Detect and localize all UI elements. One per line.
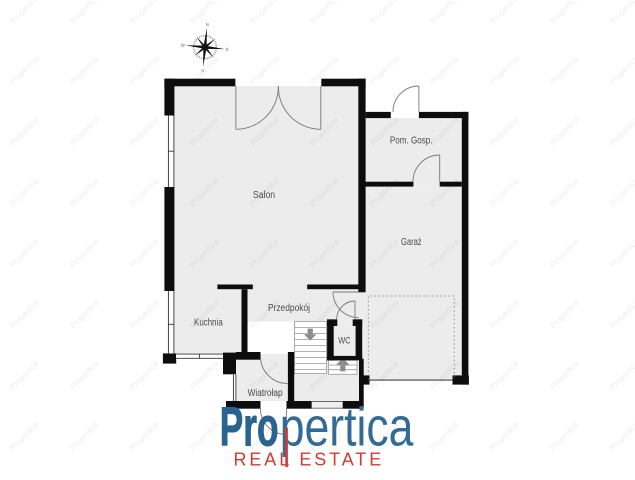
svg-text:WC: WC: [338, 335, 351, 346]
svg-text:Salon: Salon: [253, 190, 275, 201]
svg-text:Kuchnia: Kuchnia: [194, 318, 223, 329]
svg-text:S: S: [201, 68, 204, 73]
svg-text:Garaż: Garaż: [401, 237, 422, 248]
svg-text:N: N: [205, 22, 209, 27]
svg-text:E: E: [225, 47, 228, 52]
svg-text:pertica: pertica: [280, 396, 414, 458]
svg-text:Pom. Gosp.: Pom. Gosp.: [390, 135, 433, 146]
svg-text:Pro: Pro: [220, 396, 279, 458]
svg-text:REAL ESTATE: REAL ESTATE: [234, 450, 385, 470]
svg-text:Przedpokój: Przedpokój: [268, 303, 310, 314]
